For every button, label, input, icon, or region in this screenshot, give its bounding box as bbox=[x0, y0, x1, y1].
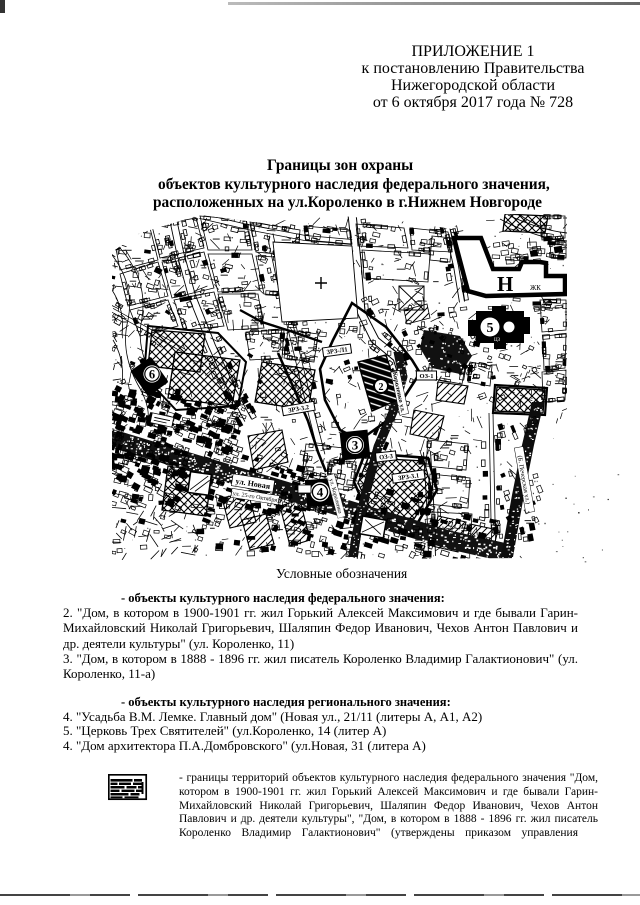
svg-text:5: 5 bbox=[487, 321, 494, 336]
svg-text:6: 6 bbox=[149, 368, 155, 382]
svg-text:Н: Н bbox=[497, 272, 513, 296]
svg-text:3: 3 bbox=[352, 438, 359, 453]
svg-text:2: 2 bbox=[379, 382, 384, 393]
svg-text:4: 4 bbox=[317, 485, 324, 500]
svg-text:ЦЗ: ЦЗ bbox=[494, 338, 501, 343]
svg-text:ЖК: ЖК bbox=[530, 284, 541, 292]
svg-text:ОЗ-1: ОЗ-1 bbox=[420, 373, 434, 380]
